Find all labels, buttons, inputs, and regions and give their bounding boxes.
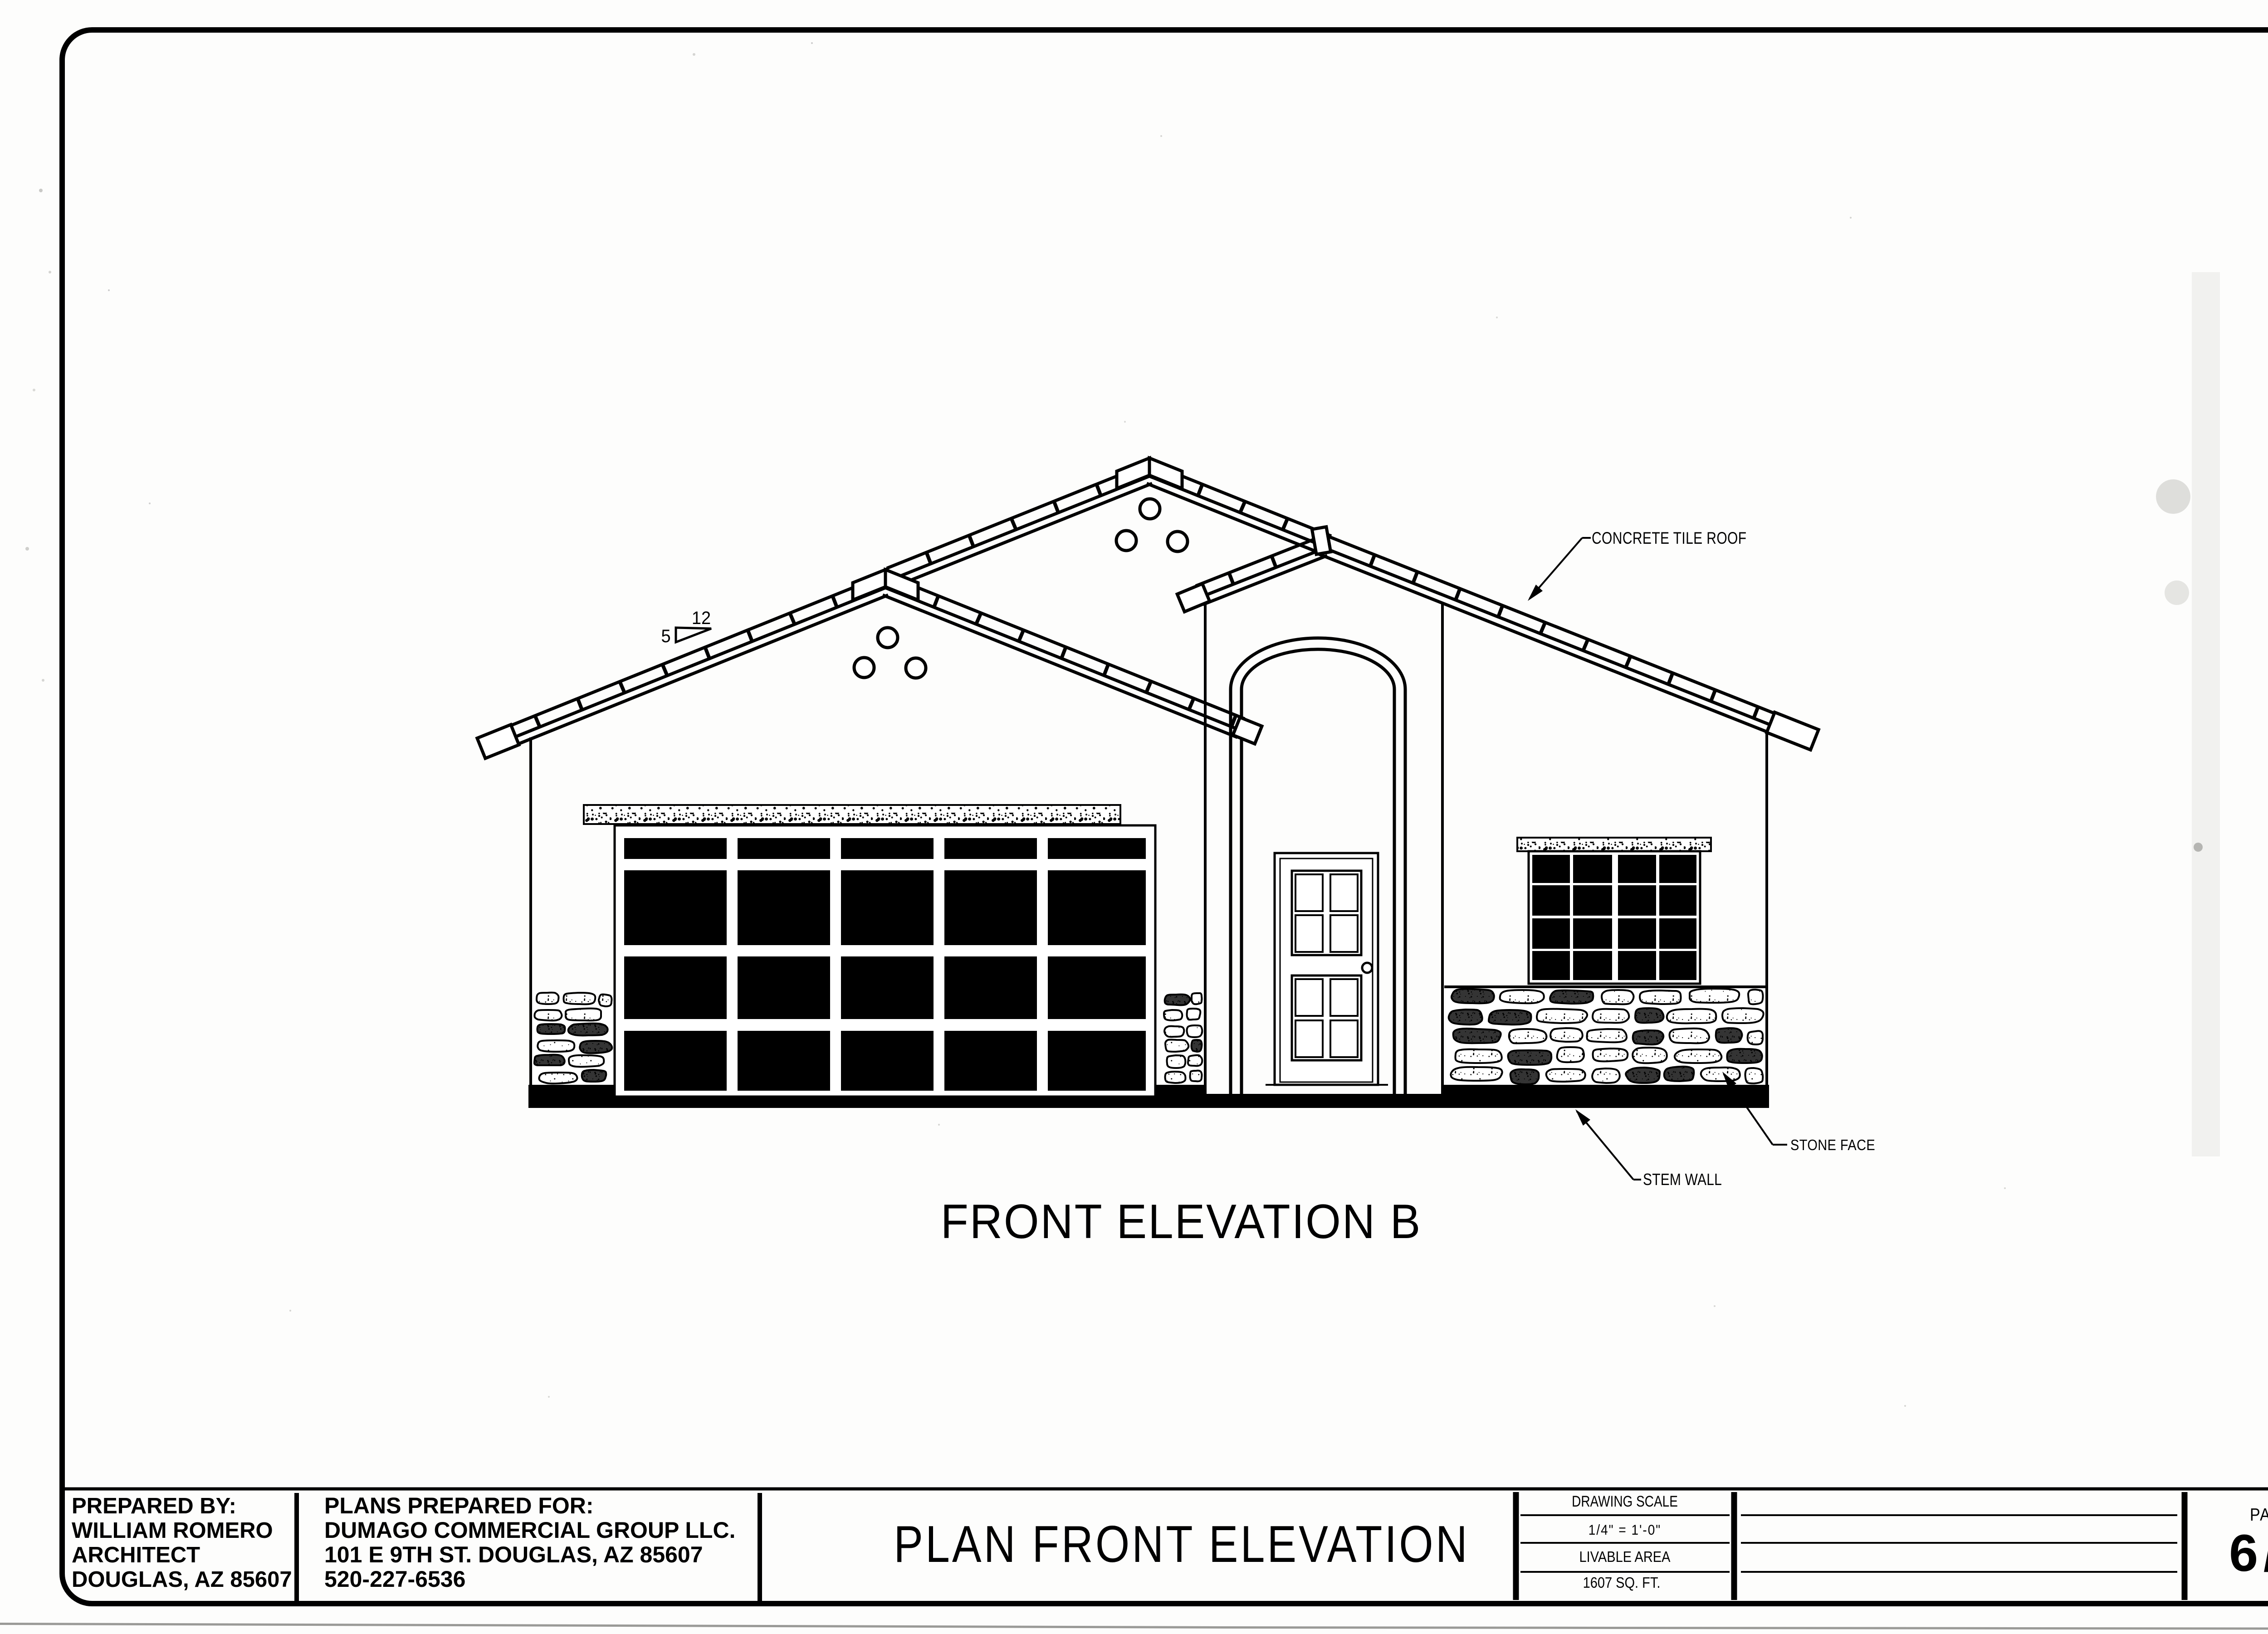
svg-text:PAGE: PAGE (2250, 1505, 2268, 1525)
svg-text:6/9: 6/9 (2229, 1524, 2268, 1582)
svg-text:WILLIAM ROMERO: WILLIAM ROMERO (72, 1518, 273, 1543)
svg-text:STONE FACE: STONE FACE (1790, 1136, 1875, 1153)
svg-text:DOUGLAS, AZ 85607: DOUGLAS, AZ 85607 (72, 1567, 292, 1592)
svg-text:STEM WALL: STEM WALL (1643, 1171, 1722, 1189)
svg-text:CONCRETE TILE ROOF: CONCRETE TILE ROOF (1592, 529, 1746, 548)
svg-text:101 E 9TH ST. DOUGLAS, AZ 8560: 101 E 9TH ST. DOUGLAS, AZ 85607 (324, 1542, 703, 1567)
svg-text:DUMAGO COMMERCIAL GROUP LLC.: DUMAGO COMMERCIAL GROUP LLC. (324, 1517, 735, 1543)
svg-text:DRAWING SCALE: DRAWING SCALE (1572, 1493, 1678, 1510)
svg-text:12: 12 (692, 608, 711, 628)
svg-text:LIVABLE AREA: LIVABLE AREA (1579, 1548, 1671, 1565)
svg-text:ARCHITECT: ARCHITECT (72, 1543, 200, 1567)
svg-text:PREPARED BY:: PREPARED BY: (72, 1494, 236, 1518)
svg-text:PLANS PREPARED FOR:: PLANS PREPARED FOR: (324, 1493, 594, 1518)
svg-text:FRONT ELEVATION B: FRONT ELEVATION B (941, 1194, 1422, 1249)
svg-text:1/4" = 1'-0": 1/4" = 1'-0" (1589, 1522, 1661, 1538)
svg-text:PLAN FRONT ELEVATION: PLAN FRONT ELEVATION (894, 1516, 1470, 1573)
svg-text:1607 SQ. FT.: 1607 SQ. FT. (1583, 1574, 1661, 1591)
svg-text:520-227-6536: 520-227-6536 (324, 1566, 465, 1592)
svg-text:5: 5 (661, 626, 670, 646)
